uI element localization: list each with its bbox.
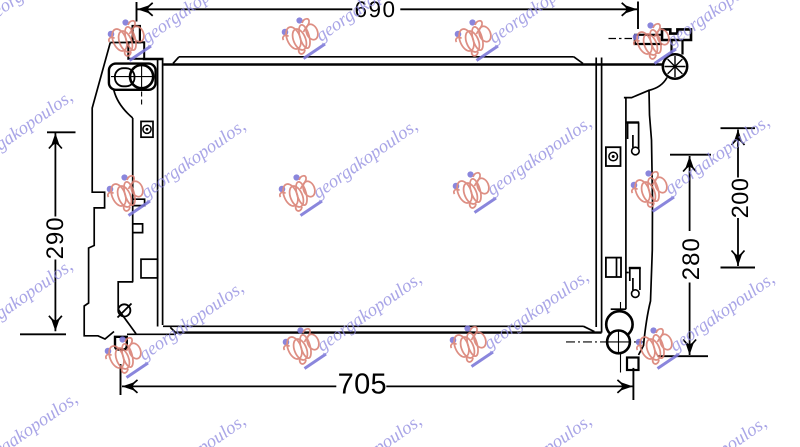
- svg-text:200: 200: [727, 178, 753, 219]
- svg-text:280: 280: [678, 237, 705, 280]
- svg-text:705: 705: [338, 368, 387, 400]
- svg-text:290: 290: [42, 216, 69, 259]
